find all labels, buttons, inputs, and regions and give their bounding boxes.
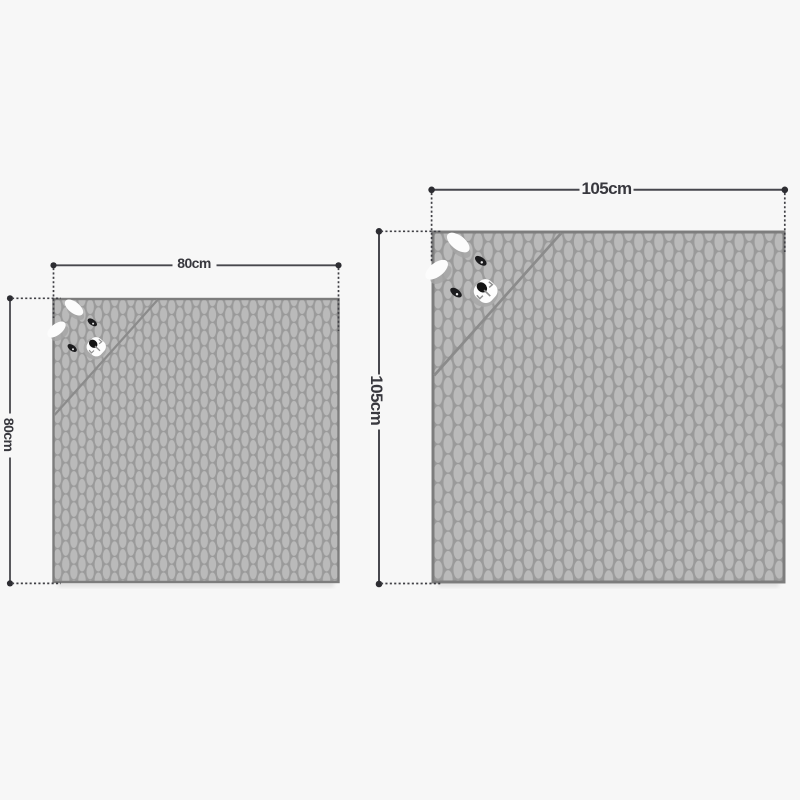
svg-text:80cm: 80cm (1, 418, 17, 452)
svg-text:105cm: 105cm (367, 375, 386, 425)
svg-text:105cm: 105cm (582, 179, 632, 198)
svg-text:80cm: 80cm (177, 255, 211, 271)
